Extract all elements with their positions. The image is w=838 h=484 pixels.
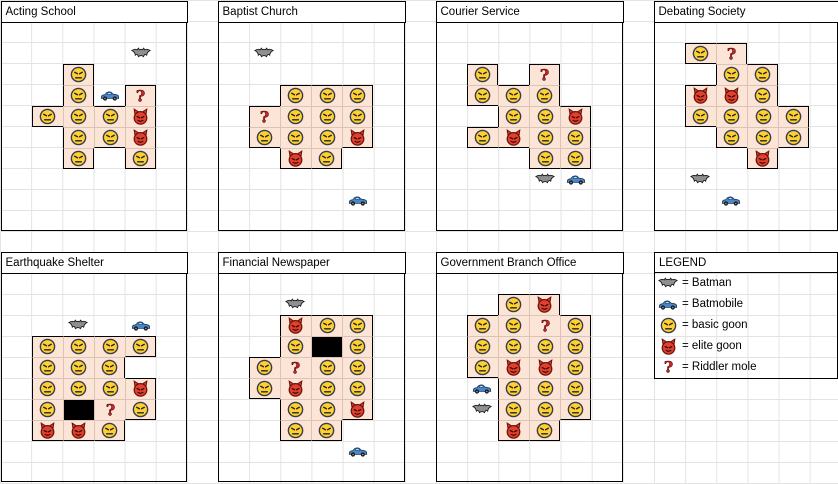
cell-elite-goon[interactable]	[498, 420, 529, 441]
svg-text:?: ?	[540, 317, 549, 335]
basic-goon-icon	[785, 108, 802, 125]
basic-goon-icon	[349, 87, 366, 104]
batman-icon[interactable]	[63, 315, 94, 336]
legend-label-basic-goon: = basic goon	[682, 319, 748, 331]
basic-goon-icon	[755, 129, 772, 146]
cell-basic-goon[interactable]	[560, 399, 591, 420]
cell-elite-goon[interactable]	[342, 399, 373, 420]
cell-basic-goon[interactable]	[498, 85, 529, 106]
svg-text:?: ?	[136, 87, 145, 105]
cell-basic-goon[interactable]	[311, 148, 342, 169]
spreadsheet: LEGEND = Batman = Batmobile = basic goon…	[0, 0, 838, 484]
basic-goon-icon	[39, 359, 56, 376]
cell-riddler-mole[interactable]: ?	[529, 315, 560, 336]
cell-basic-goon[interactable]	[249, 378, 280, 399]
elite-goon-icon	[537, 359, 554, 376]
cell-basic-goon[interactable]	[498, 399, 529, 420]
cell-basic-goon[interactable]	[529, 127, 560, 148]
cell-basic-goon[interactable]	[280, 420, 311, 441]
cell-basic-goon[interactable]	[280, 85, 311, 106]
cell-riddler-mole[interactable]: ?	[94, 399, 125, 420]
basic-goon-icon	[70, 150, 87, 167]
cell-basic-goon[interactable]	[94, 357, 125, 378]
basic-goon-icon	[567, 150, 584, 167]
elite-goon-icon	[567, 108, 584, 125]
batmobile-icon	[658, 298, 678, 311]
cell-elite-goon[interactable]	[342, 127, 373, 148]
riddler-mole-icon: ?	[258, 108, 271, 126]
basic-goon-icon	[567, 401, 584, 418]
basic-goon-icon	[567, 129, 584, 146]
basic-goon-icon	[567, 380, 584, 397]
basic-goon-icon	[505, 401, 522, 418]
basic-goon-icon	[319, 129, 336, 146]
elite-goon-icon	[132, 129, 149, 146]
cell-elite-goon[interactable]	[529, 357, 560, 378]
cell-basic-goon[interactable]	[311, 378, 342, 399]
batmobile-icon[interactable]	[467, 378, 498, 399]
cell-basic-goon[interactable]	[498, 378, 529, 399]
elite-goon-icon	[505, 129, 522, 146]
cell-elite-goon[interactable]	[685, 85, 716, 106]
cell-basic-goon[interactable]	[125, 148, 156, 169]
cell-basic-goon[interactable]	[529, 106, 560, 127]
cell-basic-goon[interactable]	[498, 294, 529, 315]
cell-basic-goon[interactable]	[747, 64, 778, 85]
basic-goon-icon	[537, 108, 554, 125]
elite-goon-icon	[132, 108, 149, 125]
elite-goon-icon	[505, 422, 522, 439]
basic-goon-icon	[101, 359, 118, 376]
basic-goon-icon	[537, 150, 554, 167]
basic-goon-icon	[39, 380, 56, 397]
riddler-mole-icon: ?	[725, 45, 738, 63]
basic-goon-icon	[536, 422, 553, 439]
cell-basic-goon[interactable]	[94, 336, 125, 357]
basic-goon-icon	[287, 129, 304, 146]
elite-goon-icon	[754, 150, 771, 167]
basic-goon-icon	[102, 108, 119, 125]
elite-goon-icon	[692, 87, 709, 104]
svg-text:?: ?	[663, 358, 672, 376]
cell-basic-goon[interactable]	[125, 399, 156, 420]
basic-goon-icon	[39, 338, 56, 355]
basic-goon-icon	[692, 45, 709, 62]
legend-title: LEGEND	[654, 252, 838, 273]
cell-basic-goon[interactable]	[498, 315, 529, 336]
panel-title: Government Branch Office	[436, 252, 624, 274]
batman-icon[interactable]	[467, 399, 498, 420]
cell-basic-goon[interactable]	[32, 399, 63, 420]
cell-riddler-mole[interactable]: ?	[716, 43, 747, 64]
basic-goon-icon	[692, 108, 709, 125]
cell-basic-goon[interactable]	[716, 106, 747, 127]
elite-goon-icon	[349, 129, 366, 146]
batman-icon[interactable]	[529, 169, 560, 190]
cell-basic-goon[interactable]	[529, 399, 560, 420]
basic-goon-icon	[754, 66, 771, 83]
elite-goon-icon	[536, 296, 553, 313]
batmobile-icon[interactable]	[560, 169, 591, 190]
basic-goon-icon	[70, 108, 87, 125]
cell-basic-goon[interactable]	[778, 127, 809, 148]
batman-icon[interactable]	[249, 43, 280, 64]
batmobile-icon[interactable]	[94, 85, 125, 106]
elite-goon-icon	[287, 150, 304, 167]
svg-text:?: ?	[727, 45, 736, 63]
cell-elite-goon[interactable]	[716, 85, 747, 106]
panel-debating-society: Debating Society?	[654, 1, 838, 231]
basic-goon-icon	[349, 380, 366, 397]
cell-basic-goon[interactable]	[125, 336, 156, 357]
cell-basic-goon[interactable]	[467, 64, 498, 85]
cell-basic-goon[interactable]	[529, 420, 560, 441]
basic-goon-icon	[754, 87, 771, 104]
cell-basic-goon[interactable]	[311, 106, 342, 127]
basic-goon-icon	[319, 380, 336, 397]
cell-basic-goon[interactable]	[716, 64, 747, 85]
cell-basic-goon[interactable]	[311, 399, 342, 420]
basic-goon-icon	[567, 317, 584, 334]
basic-goon-icon	[70, 338, 87, 355]
basic-goon-icon	[132, 401, 149, 418]
cell-basic-goon[interactable]	[560, 378, 591, 399]
cell-riddler-mole[interactable]: ?	[125, 85, 156, 106]
cell-basic-goon[interactable]	[32, 106, 63, 127]
elite-goon-icon	[287, 380, 304, 397]
cell-basic-goon[interactable]	[63, 336, 94, 357]
basic-goon-icon	[70, 380, 87, 397]
basic-goon-icon	[474, 66, 491, 83]
basic-goon-icon	[537, 401, 554, 418]
cell-elite-goon[interactable]	[125, 378, 156, 399]
basic-goon-icon	[474, 129, 491, 146]
legend-label-riddler-mole: = Riddler mole	[682, 361, 756, 373]
riddler-mole-icon: ?	[134, 87, 147, 105]
cell-basic-goon[interactable]	[467, 315, 498, 336]
cell-basic-goon[interactable]	[529, 85, 560, 106]
cell-basic-goon[interactable]	[280, 106, 311, 127]
cell-elite-goon[interactable]	[529, 294, 560, 315]
elite-goon-icon	[39, 422, 56, 439]
basic-goon-icon	[70, 66, 87, 83]
basic-goon-icon	[256, 380, 273, 397]
legend-label-batman: = Batman	[682, 277, 732, 289]
cell-basic-goon[interactable]	[249, 357, 280, 378]
elite-goon-icon	[70, 422, 87, 439]
cell-riddler-mole[interactable]: ?	[249, 106, 280, 127]
legend-panel: LEGEND = Batman = Batmobile = basic goon…	[654, 252, 838, 379]
legend-row-elite-goon: = elite goon	[655, 336, 837, 357]
basic-goon-icon	[567, 359, 584, 376]
cell-basic-goon[interactable]	[32, 336, 63, 357]
basic-goon-icon	[537, 380, 554, 397]
basic-goon-icon	[318, 422, 335, 439]
cell-basic-goon[interactable]	[94, 378, 125, 399]
cell-basic-goon[interactable]	[342, 336, 373, 357]
basic-goon-icon	[70, 129, 87, 146]
riddler-mole-icon: ?	[289, 359, 302, 377]
elite-goon-icon	[349, 401, 366, 418]
cell-basic-goon[interactable]	[63, 106, 94, 127]
cell-basic-goon[interactable]	[529, 148, 560, 169]
riddler-mole-icon: ?	[538, 66, 551, 84]
cell-basic-goon[interactable]	[498, 336, 529, 357]
panel-title: Acting School	[1, 1, 188, 23]
cell-basic-goon[interactable]	[716, 127, 747, 148]
cell-elite-goon[interactable]	[125, 106, 156, 127]
cell-basic-goon[interactable]	[467, 336, 498, 357]
batmobile-icon[interactable]	[342, 441, 373, 462]
basic-goon-icon	[723, 129, 740, 146]
basic-goon-icon	[567, 338, 584, 355]
cell-basic-goon[interactable]	[560, 315, 591, 336]
cell-basic-goon[interactable]	[342, 357, 373, 378]
cell-basic-goon[interactable]	[529, 378, 560, 399]
svg-text:?: ?	[260, 108, 269, 126]
svg-text:?: ?	[291, 359, 300, 377]
cell-basic-goon[interactable]	[467, 127, 498, 148]
cell-basic-goon[interactable]	[342, 315, 373, 336]
panel-baptist-church: Baptist Church?	[218, 1, 405, 231]
basic-goon-icon	[505, 317, 522, 334]
panel-title: Debating Society	[654, 1, 838, 23]
svg-text:?: ?	[540, 66, 549, 84]
basic-goon-icon	[319, 317, 336, 334]
basic-goon-icon	[102, 338, 119, 355]
panel-title: Baptist Church	[218, 1, 406, 23]
cell-basic-goon[interactable]	[63, 378, 94, 399]
batmobile-icon[interactable]	[716, 190, 747, 211]
basic-goon-icon	[256, 129, 273, 146]
basic-goon-icon	[349, 338, 366, 355]
elite-goon-icon	[505, 359, 522, 376]
basic-goon-icon	[256, 359, 273, 376]
panel-government-branch-office: Government Branch Office?	[436, 252, 623, 482]
cell-elite-goon[interactable]	[498, 127, 529, 148]
cell-riddler-mole[interactable]: ?	[529, 64, 560, 85]
basic-goon-icon	[287, 87, 304, 104]
cell-basic-goon[interactable]	[32, 378, 63, 399]
cell-elite-goon[interactable]	[63, 420, 94, 441]
basic-goon-icon	[537, 338, 554, 355]
cell-basic-goon[interactable]	[63, 127, 94, 148]
cell-basic-goon[interactable]	[94, 420, 125, 441]
cell-basic-goon[interactable]	[560, 357, 591, 378]
basic-goon-icon	[505, 380, 522, 397]
panel-title: Earthquake Shelter	[1, 252, 188, 274]
legend-items-box: = Batman = Batmobile = basic goon = elit…	[654, 272, 838, 379]
cell-basic-goon[interactable]	[311, 85, 342, 106]
cell-basic-goon[interactable]	[311, 420, 342, 441]
legend-row-batmobile: = Batmobile	[655, 294, 837, 315]
batman-icon[interactable]	[125, 43, 156, 64]
basic-goon-icon	[536, 87, 553, 104]
basic-goon-icon	[349, 317, 366, 334]
basic-goon-icon	[785, 129, 802, 146]
basic-goon-icon	[132, 338, 149, 355]
panel-earthquake-shelter: Earthquake Shelter?	[1, 252, 187, 482]
basic-goon-icon	[287, 401, 304, 418]
basic-goon-icon	[349, 359, 366, 376]
panel-courier-service: Courier Service?	[436, 1, 623, 231]
panel-acting-school: Acting School?	[1, 1, 187, 231]
batman-icon[interactable]	[685, 169, 716, 190]
cell-basic-goon[interactable]	[747, 127, 778, 148]
cell-riddler-mole[interactable]: ?	[280, 357, 311, 378]
cell-basic-goon[interactable]	[94, 106, 125, 127]
basic-goon-icon	[287, 338, 304, 355]
basic-goon-icon	[319, 108, 336, 125]
basic-goon-icon	[39, 401, 56, 418]
cell-basic-goon[interactable]	[342, 85, 373, 106]
cell-elite-goon[interactable]	[498, 357, 529, 378]
legend-label-elite-goon: = elite goon	[682, 340, 742, 352]
basic-goon-icon	[287, 108, 304, 125]
elite-goon-icon	[132, 380, 149, 397]
basic-goon-icon	[319, 401, 336, 418]
cell-basic-goon[interactable]	[342, 106, 373, 127]
cell-basic-goon[interactable]	[311, 357, 342, 378]
cell-basic-goon[interactable]	[94, 127, 125, 148]
cell-basic-goon[interactable]	[249, 127, 280, 148]
cell-basic-goon[interactable]	[311, 315, 342, 336]
basic-goon-icon	[474, 359, 491, 376]
batman-icon[interactable]	[280, 294, 311, 315]
elite-goon-icon	[287, 317, 304, 334]
cell-basic-goon[interactable]	[467, 85, 498, 106]
riddler-mole-icon: ?	[104, 401, 117, 419]
cell-basic-goon[interactable]	[280, 336, 311, 357]
cell-elite-goon[interactable]	[747, 148, 778, 169]
basic-goon-icon	[101, 422, 118, 439]
panel-title: Financial Newspaper	[218, 252, 406, 274]
cell-basic-goon[interactable]	[498, 106, 529, 127]
basic-goon-icon	[505, 338, 522, 355]
basic-goon-icon	[537, 129, 554, 146]
basic-goon-icon	[70, 87, 87, 104]
basic-goon-icon	[505, 108, 522, 125]
cell-basic-goon[interactable]	[63, 64, 94, 85]
basic-goon-icon	[319, 359, 336, 376]
batmobile-icon[interactable]	[342, 190, 373, 211]
basic-goon-icon	[132, 150, 149, 167]
cell-basic-goon[interactable]	[311, 127, 342, 148]
cell-basic-goon[interactable]	[32, 357, 63, 378]
basic-goon-icon	[318, 150, 335, 167]
cell-elite-goon[interactable]	[280, 148, 311, 169]
cell-elite-goon[interactable]	[32, 420, 63, 441]
basic-goon-icon	[474, 87, 491, 104]
batman-icon	[658, 277, 678, 290]
basic-goon-icon	[723, 108, 740, 125]
cell-blocked[interactable]	[311, 336, 342, 357]
cell-blocked[interactable]	[63, 399, 94, 420]
basic-goon-icon	[474, 317, 491, 334]
basic-goon-icon	[658, 317, 678, 334]
cell-basic-goon[interactable]	[280, 127, 311, 148]
cell-basic-goon[interactable]	[560, 148, 591, 169]
basic-goon-icon	[723, 66, 740, 83]
cell-elite-goon[interactable]	[560, 106, 591, 127]
basic-goon-icon	[287, 422, 304, 439]
cell-basic-goon[interactable]	[63, 148, 94, 169]
svg-text:?: ?	[105, 401, 114, 419]
cell-basic-goon[interactable]	[529, 336, 560, 357]
cell-basic-goon[interactable]	[685, 43, 716, 64]
cell-basic-goon[interactable]	[280, 399, 311, 420]
basic-goon-icon	[505, 296, 522, 313]
cell-basic-goon[interactable]	[685, 106, 716, 127]
panel-title: Courier Service	[436, 1, 624, 23]
cell-basic-goon[interactable]	[63, 85, 94, 106]
riddler-mole-icon: ?	[539, 317, 552, 335]
elite-goon-icon	[723, 87, 740, 104]
elite-goon-icon	[658, 338, 678, 355]
cell-basic-goon[interactable]	[63, 357, 94, 378]
basic-goon-icon	[474, 338, 491, 355]
legend-row-riddler-mole: ? = Riddler mole	[655, 357, 837, 378]
basic-goon-icon	[102, 380, 119, 397]
basic-goon-icon	[755, 108, 772, 125]
cell-elite-goon[interactable]	[125, 127, 156, 148]
legend-row-basic-goon: = basic goon	[655, 315, 837, 336]
cell-basic-goon[interactable]	[560, 336, 591, 357]
basic-goon-icon	[102, 129, 119, 146]
basic-goon-icon	[319, 87, 336, 104]
batmobile-icon[interactable]	[125, 315, 156, 336]
cell-basic-goon[interactable]	[747, 106, 778, 127]
cell-basic-goon[interactable]	[467, 357, 498, 378]
cell-elite-goon[interactable]	[280, 378, 311, 399]
cell-elite-goon[interactable]	[280, 315, 311, 336]
riddler-mole-icon: ?	[658, 358, 678, 376]
cell-basic-goon[interactable]	[342, 378, 373, 399]
cell-basic-goon[interactable]	[560, 127, 591, 148]
basic-goon-icon	[349, 108, 366, 125]
panel-financial-newspaper: Financial Newspaper?	[218, 252, 405, 482]
legend-label-batmobile: = Batmobile	[682, 298, 743, 310]
basic-goon-icon	[70, 359, 87, 376]
basic-goon-icon	[505, 87, 522, 104]
basic-goon-icon	[39, 108, 56, 125]
cell-basic-goon[interactable]	[778, 106, 809, 127]
legend-row-batman: = Batman	[655, 273, 837, 294]
cell-basic-goon[interactable]	[747, 85, 778, 106]
